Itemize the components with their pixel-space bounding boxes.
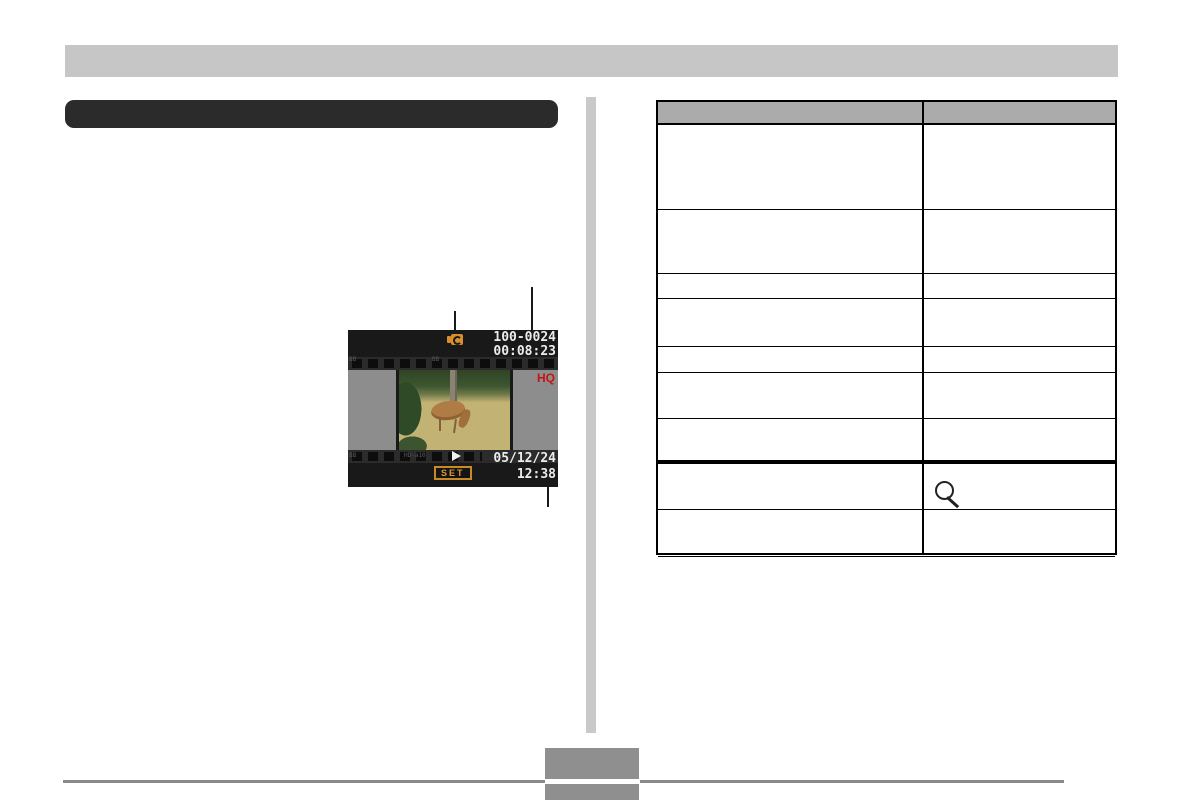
table-row	[658, 210, 1115, 274]
film-edge-mark: HD-a10	[404, 453, 426, 459]
magnifier-icon	[935, 481, 954, 500]
quality-indicator: HQ	[537, 372, 555, 385]
film-edge-mark: BB	[349, 357, 356, 363]
table-row	[658, 464, 1115, 510]
movie-camera-icon	[447, 334, 463, 346]
file-number: 100-0024	[493, 331, 556, 345]
table-row	[658, 274, 1115, 299]
table-row	[658, 347, 1115, 373]
film-strip-top: BB BB	[348, 357, 558, 370]
reference-table	[656, 100, 1117, 555]
page-number-tab	[545, 748, 639, 779]
footer-rule	[63, 780, 545, 783]
table-row	[658, 510, 1115, 557]
film-edge-mark: BB	[349, 453, 356, 459]
table-row	[658, 419, 1115, 464]
play-icon	[452, 451, 461, 461]
tree-trunk	[450, 370, 457, 404]
film-frame-blank-left	[348, 370, 396, 451]
table-column-divider	[922, 102, 924, 553]
table-row	[658, 299, 1115, 347]
film-edge-mark: BB	[432, 357, 439, 363]
time-stamp: 12:38	[517, 468, 556, 482]
film-sprocket-holes-top	[352, 359, 556, 368]
date-stamp: 05/12/24	[493, 452, 556, 466]
movie-frame-photo-deer	[399, 370, 510, 451]
deer-leg	[439, 417, 441, 431]
footer-rule	[640, 780, 1064, 783]
movie-camera-icon-cutout	[453, 336, 462, 345]
page-header-bar	[65, 45, 1118, 77]
manual-page: 100-0024 00:08:23 BB BB HQ BB HD-a10 05/…	[0, 0, 1183, 800]
table-header-row	[658, 102, 1115, 125]
page-number-tab-lower	[545, 784, 639, 800]
section-title-bar	[65, 100, 558, 128]
table-row	[658, 125, 1115, 210]
deer-leg	[453, 419, 457, 433]
set-button: SET	[434, 466, 472, 480]
table-row	[658, 373, 1115, 419]
column-divider	[586, 97, 596, 733]
camera-screen-illustration: 100-0024 00:08:23 BB BB HQ BB HD-a10 05/…	[348, 330, 558, 487]
